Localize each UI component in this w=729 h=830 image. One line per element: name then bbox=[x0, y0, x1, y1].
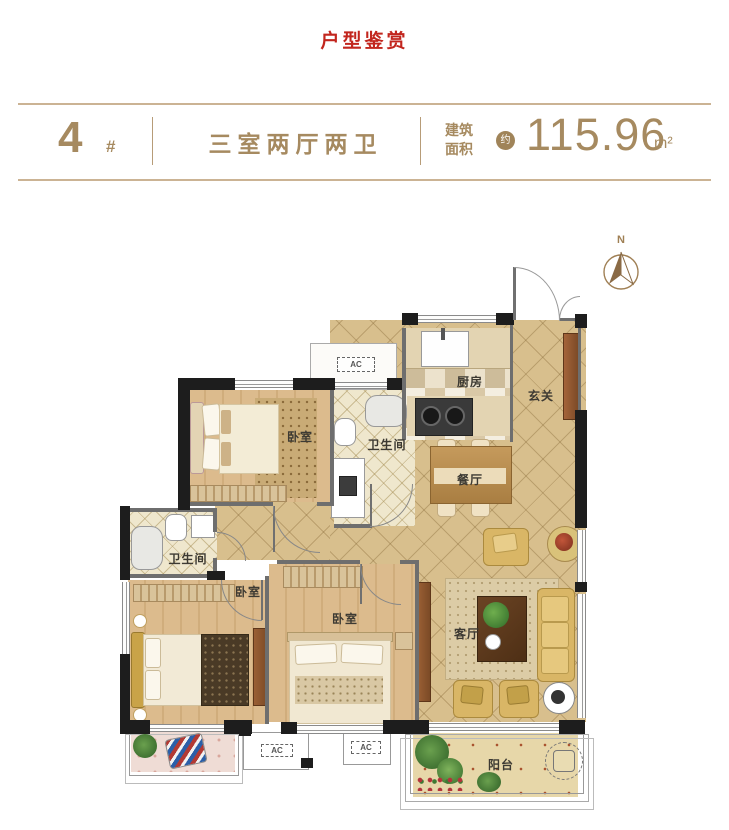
divider bbox=[152, 117, 153, 165]
wall-segment bbox=[415, 560, 419, 722]
wall-segment bbox=[402, 328, 406, 440]
pillow bbox=[460, 685, 484, 705]
window bbox=[577, 594, 586, 718]
page: { "title": "户型鉴赏", "header": { "unit_num… bbox=[0, 0, 729, 830]
flowers-icon bbox=[555, 533, 573, 551]
wall-segment bbox=[178, 502, 273, 506]
area-unit: m² bbox=[654, 135, 673, 153]
window bbox=[335, 382, 387, 389]
unit-info-bar: 4 # 三室两厅两卫 建筑 面积 约 115.96 m² bbox=[18, 103, 711, 181]
window bbox=[235, 380, 293, 388]
room-label-bedroom-left: 卧室 bbox=[226, 583, 270, 600]
wall-segment bbox=[510, 320, 513, 442]
room-label-kitchen: 厨房 bbox=[430, 373, 510, 390]
unit-number: 4 bbox=[58, 113, 82, 163]
wall-segment bbox=[334, 524, 372, 528]
room-label-living: 客厅 bbox=[445, 625, 489, 642]
sink-icon bbox=[339, 476, 357, 496]
pillow bbox=[145, 670, 161, 700]
wall-segment bbox=[575, 410, 587, 528]
window bbox=[150, 724, 224, 732]
window bbox=[297, 725, 383, 734]
wall-segment bbox=[330, 388, 334, 502]
wall-segment bbox=[575, 582, 587, 592]
unit-number-suffix: # bbox=[106, 137, 115, 157]
shoe-cabinet bbox=[563, 333, 579, 420]
bathtub-icon bbox=[365, 395, 407, 427]
wall-segment bbox=[125, 508, 217, 512]
toilet-icon bbox=[334, 418, 356, 446]
wall-segment bbox=[213, 508, 217, 532]
dresser bbox=[190, 485, 287, 502]
flower-bed-icon bbox=[415, 775, 467, 791]
area-label-top: 建筑 bbox=[445, 121, 473, 140]
wall-segment bbox=[277, 560, 360, 564]
wall-segment bbox=[120, 654, 130, 726]
bed-blanket bbox=[295, 676, 383, 704]
wall-segment bbox=[383, 720, 429, 734]
toilet-icon bbox=[165, 514, 187, 541]
nightstand bbox=[395, 632, 413, 650]
pillow bbox=[221, 410, 231, 434]
faucet-icon bbox=[441, 328, 445, 340]
kitchen-sink-icon bbox=[421, 331, 469, 367]
pillow bbox=[145, 638, 161, 668]
sofa-cushion bbox=[541, 596, 569, 622]
pillow bbox=[341, 643, 384, 665]
window bbox=[122, 582, 130, 656]
bed-blanket bbox=[201, 634, 249, 706]
floor-plan: AC AC AC bbox=[115, 230, 615, 815]
page-title: 户型鉴赏 bbox=[0, 26, 729, 53]
area-label-bottom: 面积 bbox=[445, 140, 473, 159]
room-label-bathroom-top: 卫生间 bbox=[358, 436, 416, 453]
wall-segment bbox=[239, 726, 251, 736]
room-label-foyer: 玄关 bbox=[513, 387, 569, 404]
pillow bbox=[506, 685, 530, 705]
sofa-cushion bbox=[541, 622, 569, 648]
wall-segment bbox=[301, 758, 313, 768]
bedside-lamp-icon bbox=[133, 614, 147, 628]
pillow bbox=[221, 442, 231, 466]
ac-label: AC bbox=[261, 744, 293, 757]
wall-segment bbox=[578, 321, 581, 413]
area-label: 建筑 面积 bbox=[445, 121, 473, 159]
room-label-bedroom-top: 卧室 bbox=[278, 428, 322, 445]
burner-icon bbox=[445, 406, 465, 426]
sofa-cushion bbox=[541, 648, 569, 674]
wall-segment bbox=[559, 720, 585, 734]
balcony-table bbox=[553, 750, 575, 772]
room-label-bedroom-middle: 卧室 bbox=[323, 610, 367, 627]
wall-segment bbox=[178, 378, 190, 510]
tv-cabinet bbox=[417, 582, 431, 702]
ac-label: AC bbox=[337, 357, 375, 372]
wall-segment bbox=[387, 378, 402, 390]
entry-door-arc bbox=[559, 296, 580, 320]
pillow bbox=[295, 643, 338, 665]
area-value: 115.96 bbox=[526, 109, 666, 161]
room-label-balcony: 阳台 bbox=[479, 756, 523, 773]
burner-icon bbox=[421, 406, 441, 426]
layout-text: 三室两厅两卫 bbox=[168, 125, 423, 159]
ac-label: AC bbox=[351, 741, 381, 754]
wall-segment bbox=[496, 313, 514, 325]
room-label-dining: 餐厅 bbox=[448, 471, 492, 488]
window bbox=[577, 530, 586, 582]
wall-segment bbox=[120, 720, 150, 734]
wall-segment bbox=[402, 313, 418, 325]
sliding-door bbox=[429, 723, 559, 731]
pillow bbox=[492, 532, 518, 553]
wardrobe bbox=[283, 566, 363, 588]
approx-badge: 约 bbox=[496, 131, 515, 150]
washbasin-icon bbox=[191, 515, 215, 538]
wall-segment bbox=[120, 506, 130, 580]
wall-segment bbox=[207, 571, 225, 580]
wall-segment bbox=[293, 378, 335, 390]
stool-icon bbox=[551, 690, 565, 704]
dresser bbox=[133, 584, 235, 602]
plant-icon bbox=[133, 734, 157, 758]
entry-door-arc bbox=[514, 267, 560, 321]
divider bbox=[420, 117, 421, 165]
window bbox=[418, 315, 496, 323]
wall-segment bbox=[281, 722, 297, 734]
palm-plant-icon bbox=[477, 772, 501, 792]
room-label-bathroom-left: 卫生间 bbox=[159, 550, 217, 567]
